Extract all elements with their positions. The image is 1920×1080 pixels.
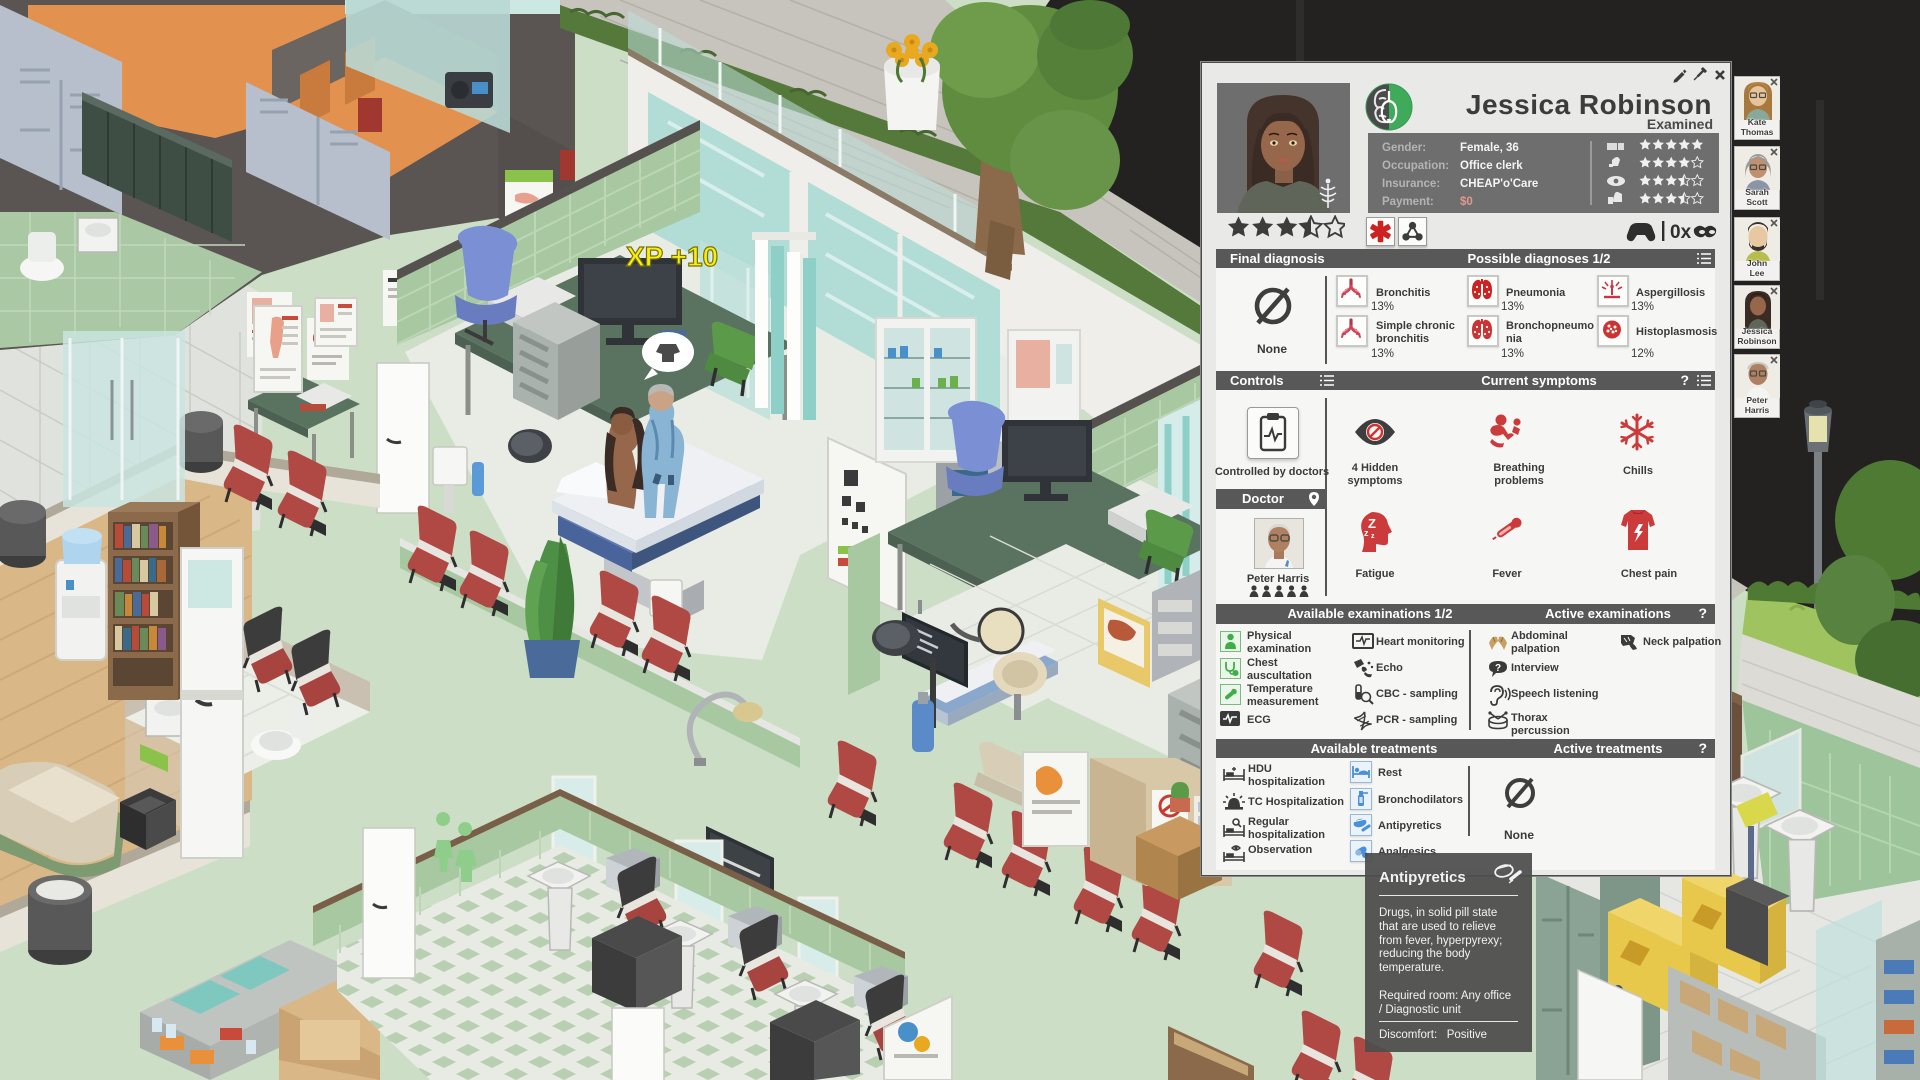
svg-text:?: ? — [1495, 663, 1501, 674]
svg-text:z: z — [1364, 528, 1369, 538]
svg-text:XP +10: XP +10 — [626, 241, 718, 272]
svg-text:Z: Z — [1368, 516, 1376, 531]
svg-text:z: z — [1371, 533, 1375, 540]
svg-text:0x: 0x — [1670, 222, 1692, 243]
